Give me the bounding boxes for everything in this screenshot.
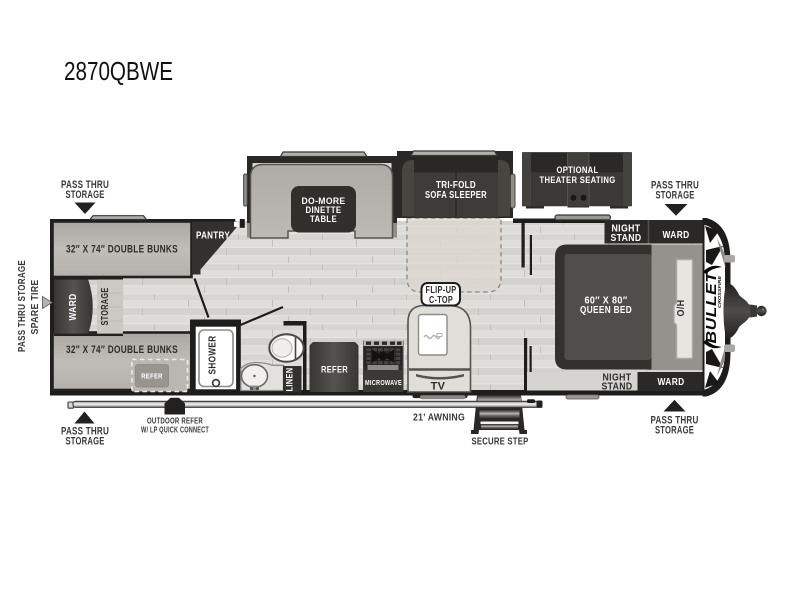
svg-text:OPTIONAL: OPTIONAL — [557, 165, 599, 175]
svg-text:CROSSFIRE: CROSSFIRE — [717, 275, 722, 308]
svg-text:WARD: WARD — [658, 377, 685, 388]
svg-text:STAND: STAND — [602, 382, 633, 393]
svg-text:C-TOP: C-TOP — [429, 295, 453, 306]
svg-text:SHOWER: SHOWER — [208, 335, 219, 374]
svg-text:21’ AWNING: 21’ AWNING — [413, 412, 465, 424]
svg-text:REFER: REFER — [321, 365, 348, 375]
svg-text:W/ LP QUICK CONNECT: W/ LP QUICK CONNECT — [141, 426, 209, 435]
svg-text:PASS THRU STORAGE: PASS THRU STORAGE — [17, 260, 28, 352]
svg-text:SPARE TIRE: SPARE TIRE — [30, 279, 41, 334]
svg-text:QUEEN BED: QUEEN BED — [580, 305, 632, 316]
svg-text:SOFA SLEEPER: SOFA SLEEPER — [425, 190, 487, 201]
svg-text:STORAGE: STORAGE — [655, 424, 694, 436]
svg-text:PANTRY: PANTRY — [196, 230, 230, 242]
svg-text:32″ X 74″ DOUBLE BUNKS: 32″ X 74″ DOUBLE BUNKS — [66, 344, 178, 356]
svg-text:REFER: REFER — [141, 374, 163, 381]
svg-text:32″ X 74″ DOUBLE BUNKS: 32″ X 74″ DOUBLE BUNKS — [66, 244, 178, 256]
svg-text:THEATER SEATING: THEATER SEATING — [540, 175, 616, 185]
svg-text:STORAGE: STORAGE — [66, 189, 105, 201]
svg-text:LINEN: LINEN — [285, 368, 295, 392]
svg-text:O/H: O/H — [675, 300, 687, 317]
svg-text:2870QBWE: 2870QBWE — [64, 56, 173, 86]
svg-text:STORAGE: STORAGE — [100, 288, 111, 326]
svg-text:WARD: WARD — [663, 230, 690, 241]
svg-text:STORAGE: STORAGE — [656, 189, 695, 201]
svg-text:SECURE STEP: SECURE STEP — [472, 436, 529, 448]
svg-text:TV: TV — [431, 381, 446, 393]
svg-text:WARD: WARD — [67, 293, 79, 320]
svg-text:STAND: STAND — [611, 233, 642, 244]
svg-text:OUTDOOR REFER: OUTDOOR REFER — [147, 417, 203, 426]
svg-text:STORAGE: STORAGE — [66, 435, 105, 447]
svg-text:TABLE: TABLE — [310, 214, 337, 225]
svg-text:MICROWAVE: MICROWAVE — [365, 378, 402, 387]
